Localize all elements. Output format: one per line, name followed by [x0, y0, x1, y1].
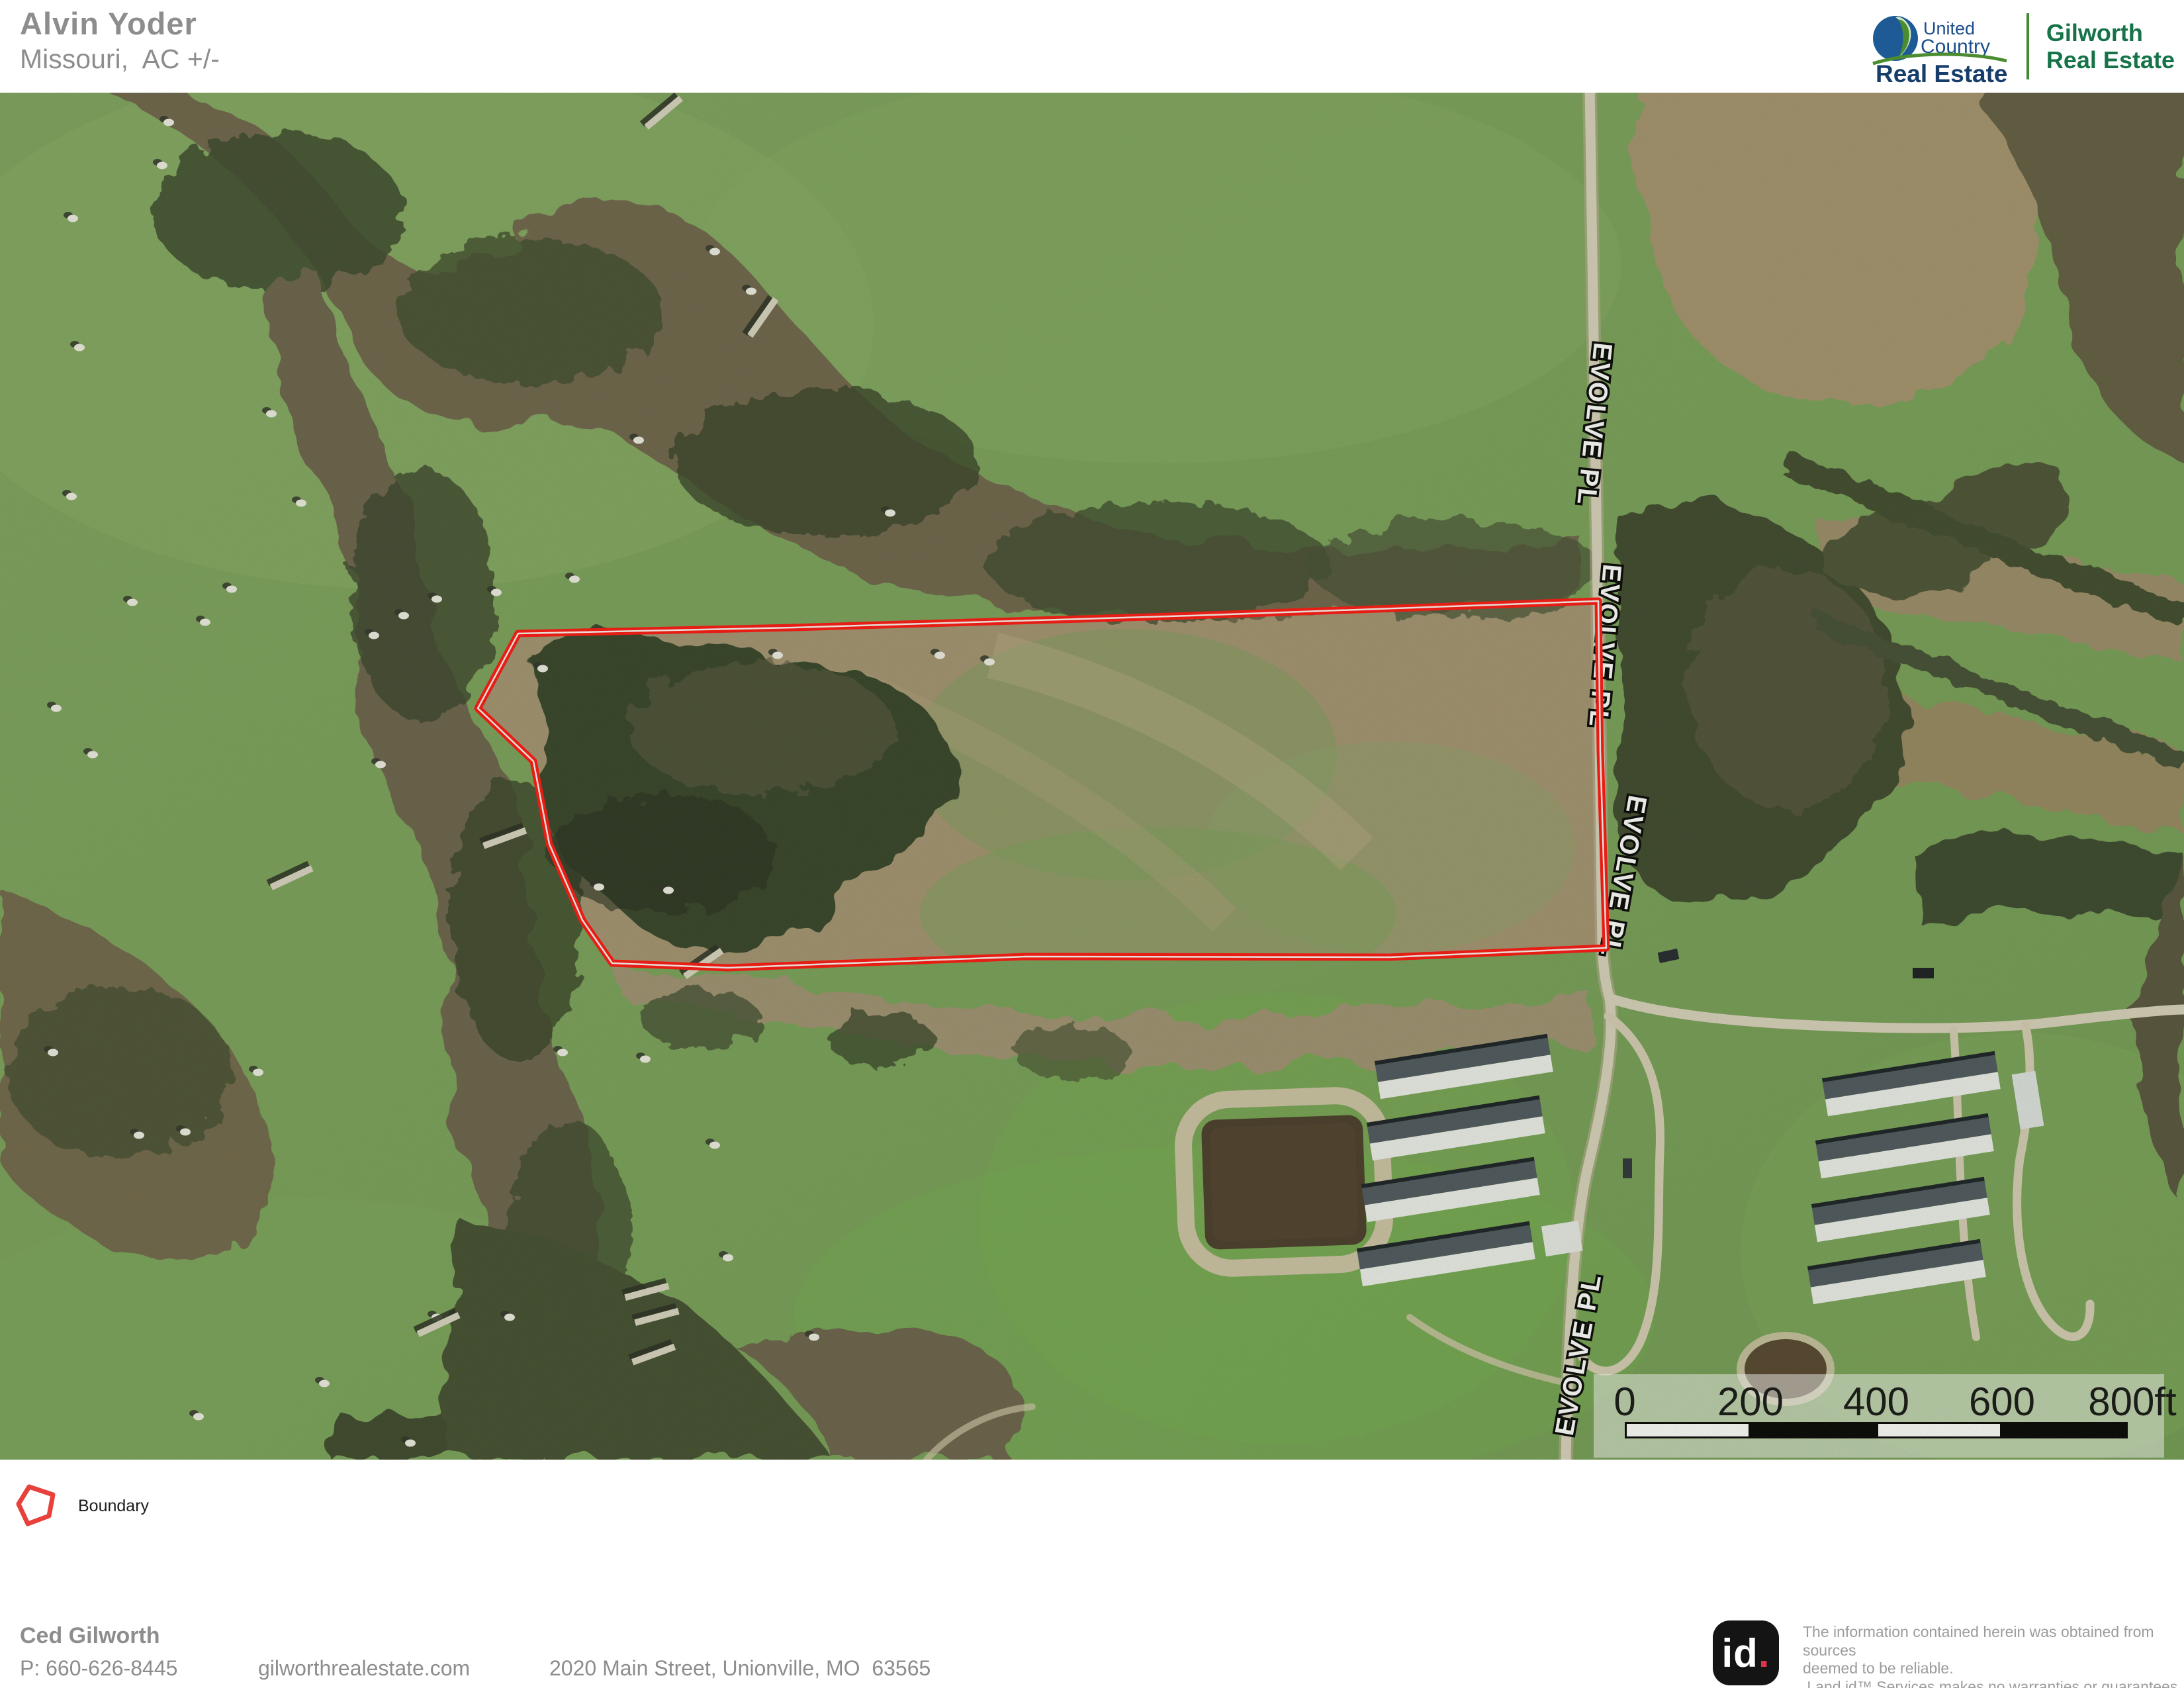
gilworth-logo: Gilworth Real Estate	[2046, 10, 2175, 83]
page-title: Alvin Yoder	[20, 5, 197, 42]
brand-divider	[2026, 13, 2029, 79]
disclaimer-line: deemed to be reliable.	[1803, 1660, 2183, 1678]
agent-address: 2020 Main Street, Unionville, MO 63565	[549, 1656, 931, 1681]
map-canvas[interactable]: EVOLVE PL EVOLVE PL EVOLVE PL EVOLVE PL …	[0, 93, 2184, 1460]
land-id-logo-text: id.	[1722, 1630, 1770, 1676]
uc-word3: Real Estate	[1876, 60, 2008, 86]
disclaimer-text: The information contained herein was obt…	[1803, 1623, 2183, 1688]
map-legend: Boundary	[12, 1481, 149, 1530]
brand-area: United Country Real Estate Gilworth Real…	[1870, 7, 2175, 86]
grain-overlay	[0, 93, 2184, 1460]
agent-website[interactable]: gilworthrealestate.com	[258, 1656, 470, 1681]
page-subtitle: Missouri, AC +/-	[20, 44, 220, 75]
agent-name: Ced Gilworth	[20, 1623, 160, 1649]
page: Alvin Yoder Missouri, AC +/- United Coun…	[0, 0, 2184, 1688]
boundary-legend-icon	[12, 1481, 60, 1530]
gilworth-line2: Real Estate	[2046, 46, 2175, 73]
united-country-logo-icon: United Country Real Estate	[1870, 7, 2009, 86]
boundary-legend-label: Boundary	[78, 1497, 149, 1516]
disclaimer-line: Land id™ Services makes no warranties or…	[1803, 1678, 2183, 1688]
disclaimer-line: The information contained herein was obt…	[1803, 1623, 2183, 1660]
agent-phone: P: 660-626-8445	[20, 1656, 177, 1681]
aerial-map[interactable]: EVOLVE PL EVOLVE PL EVOLVE PL EVOLVE PL …	[0, 93, 2184, 1460]
gilworth-line1: Gilworth	[2046, 19, 2175, 46]
land-id-logo: id.	[1713, 1620, 1779, 1685]
united-country-logo: United Country Real Estate	[1870, 7, 2009, 86]
